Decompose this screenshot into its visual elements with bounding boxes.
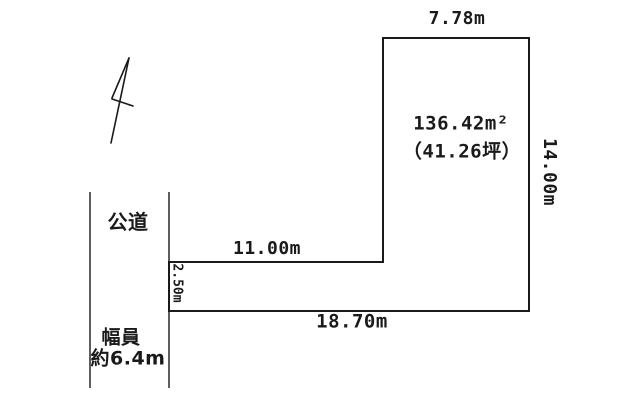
inner-width-label: 11.00m: [233, 240, 301, 258]
north-arrow-icon: [111, 58, 133, 143]
bottom-width-label: 18.70m: [316, 313, 388, 332]
right-height-label: 14.00m: [540, 138, 558, 206]
road-label: 公道: [108, 212, 149, 232]
top-width-label: 7.78m: [429, 10, 486, 28]
parcel-outline: [169, 38, 529, 311]
land-survey-diagram: 7.78m 136.42m² （41.26坪） 14.00m 11.00m 2.…: [0, 0, 640, 408]
left-depth-label: 2.50m: [171, 263, 184, 302]
area-tsubo-label: （41.26坪）: [403, 143, 521, 162]
area-sqm-label: 136.42m²: [413, 115, 509, 134]
road-width-label-line2: 約6.4m: [91, 350, 166, 369]
road-width-label-line1: 幅員: [101, 329, 140, 348]
